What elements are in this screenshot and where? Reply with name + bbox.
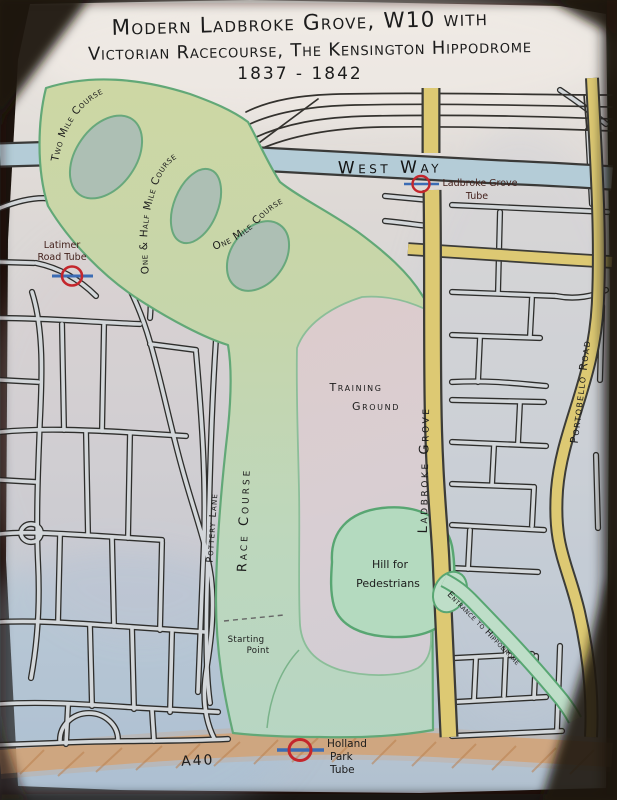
label-ladbroke-grove-tube-line1: Ladbroke Grove xyxy=(442,178,517,189)
label-training-ground-line2: Ground xyxy=(352,400,400,413)
photo-of-hand-drawn-map: Two Mile Course One & Half Mile Course O… xyxy=(0,0,617,800)
label-westway: West Way xyxy=(338,158,442,179)
label-holland-park-tube-line1: Holland xyxy=(327,738,367,750)
label-latimer-road-tube-line2: Road Tube xyxy=(37,252,86,263)
label-training-ground-line1: Training xyxy=(328,381,382,394)
map-canvas: Two Mile Course One & Half Mile Course O… xyxy=(0,0,617,800)
label-ladbroke-grove-tube-line2: Tube xyxy=(465,191,488,202)
label-starting-point-line2: Point xyxy=(247,646,270,656)
label-holland-park-tube-line2: Park xyxy=(330,751,354,763)
label-a40: A40 xyxy=(181,752,215,770)
label-starting-point-line1: Starting xyxy=(228,635,265,645)
label-holland-park-tube-line3: Tube xyxy=(329,764,355,776)
label-hill-line2: Pedestrians xyxy=(356,577,420,590)
label-hill-line1: Hill for xyxy=(372,558,409,571)
label-ladbroke-grove: Ladbroke Grove xyxy=(416,406,433,533)
label-latimer-road-tube-line1: Latimer xyxy=(44,240,81,251)
page-title-line3: 1837 - 1842 xyxy=(237,64,362,84)
